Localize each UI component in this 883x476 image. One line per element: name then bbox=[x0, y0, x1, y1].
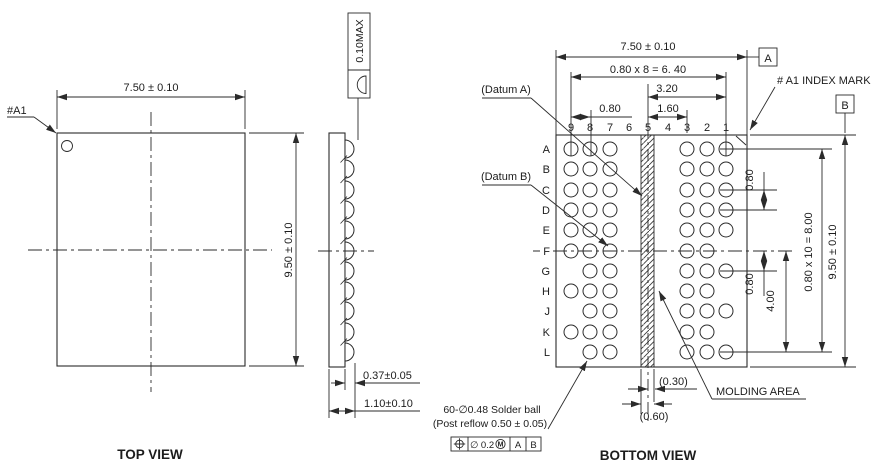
ball-K8 bbox=[583, 325, 597, 339]
ball-H8 bbox=[583, 284, 597, 298]
ball-E1 bbox=[719, 223, 733, 237]
bottom-view: 987654321 ABCDEFGHJKL 7.50 ± 0.10 A 0.80… bbox=[433, 41, 871, 463]
row-label-F: F bbox=[543, 246, 550, 258]
ball-E8 bbox=[583, 223, 597, 237]
ball-L8 bbox=[583, 345, 597, 359]
package-side-outline bbox=[329, 133, 345, 367]
ball-D8 bbox=[583, 203, 597, 217]
ball-G8 bbox=[583, 264, 597, 278]
pitch-h-text: 0.80 bbox=[599, 103, 620, 115]
side-ball-J bbox=[345, 302, 354, 320]
ball-K3 bbox=[680, 325, 694, 339]
molding-full-dim-text: (0.60) bbox=[640, 411, 669, 423]
solder-ball-note-2: (Post reflow 0.50 ± 0.05) bbox=[433, 418, 547, 430]
ball-D9 bbox=[564, 203, 578, 217]
row-label-G: G bbox=[541, 266, 550, 278]
column-label-8: 8 bbox=[587, 122, 593, 134]
ball-H2 bbox=[700, 284, 714, 298]
double-pitch-text: 1.60 bbox=[657, 103, 678, 115]
mmc-modifier-icon: M bbox=[496, 439, 505, 448]
coplanarity-callout: 0.10MAX bbox=[348, 13, 370, 140]
row-label-A: A bbox=[543, 144, 551, 156]
half-span-dimension: 3.20 bbox=[648, 83, 726, 97]
fcf-datum-a: A bbox=[515, 440, 522, 451]
position-tolerance-frame: ∅ 0.2 M A B bbox=[451, 437, 541, 451]
column-label-2: 2 bbox=[704, 122, 710, 134]
ball-B9 bbox=[564, 162, 578, 176]
top-view-title: TOP VIEW bbox=[117, 447, 183, 462]
ball-B3 bbox=[680, 162, 694, 176]
half-span-text: 3.20 bbox=[656, 83, 677, 95]
molding-half-dim-text: (0.30) bbox=[659, 376, 688, 388]
thickness-dim-text: 1.10±0.10 bbox=[364, 398, 413, 410]
molding-strip-dimensions: (0.30) (0.60) bbox=[622, 369, 697, 423]
double-pitch-dimension: 1.60 bbox=[648, 103, 687, 117]
ball-C8 bbox=[583, 183, 597, 197]
coplanarity-value: 0.10MAX bbox=[354, 19, 366, 62]
ball-A7 bbox=[603, 142, 617, 156]
ball-K2 bbox=[700, 325, 714, 339]
row-label-B: B bbox=[543, 164, 550, 176]
ball-B1 bbox=[719, 162, 733, 176]
side-ball-A bbox=[345, 140, 354, 158]
datum-b-flag: B bbox=[841, 100, 848, 112]
mmc-letter: M bbox=[498, 442, 504, 449]
ball-K7 bbox=[603, 325, 617, 339]
fcf-datum-b: B bbox=[530, 440, 536, 451]
pitch-v-upper-text: 0.80 bbox=[744, 169, 756, 190]
side-ball-G bbox=[345, 262, 354, 280]
datum-a-flag: A bbox=[764, 53, 772, 65]
row-label-L: L bbox=[544, 347, 550, 359]
bottom-height-dimension: 9.50 ± 0.10 B bbox=[827, 95, 854, 367]
ball-G7 bbox=[603, 264, 617, 278]
bottom-width-dim-text: 7.50 ± 0.10 bbox=[621, 41, 676, 53]
ball-B7 bbox=[603, 162, 617, 176]
bottom-view-title: BOTTOM VIEW bbox=[600, 448, 697, 463]
ball-E2 bbox=[700, 223, 714, 237]
quad-span-dimension: 4.00 bbox=[765, 251, 786, 352]
position-icon bbox=[454, 438, 465, 449]
side-view: 0.10MAX 0.37±0.05 1.10±0.10 bbox=[318, 13, 420, 418]
bottom-width-dimension: 7.50 ± 0.10 A bbox=[556, 41, 777, 66]
ball-L2 bbox=[700, 345, 714, 359]
row-labels: ABCDEFGHJKL bbox=[541, 144, 550, 359]
ball-B8 bbox=[583, 162, 597, 176]
standoff-dim-text: 0.37±0.05 bbox=[363, 370, 412, 382]
ball-G3 bbox=[680, 264, 694, 278]
side-ball-K bbox=[345, 323, 354, 341]
profile-of-surface-icon bbox=[357, 76, 366, 94]
ball-span-h-dimension: 0.80 x 8 = 6. 40 bbox=[571, 64, 726, 77]
position-tolerance-value: ∅ 0.2 bbox=[470, 440, 494, 451]
side-ball-C bbox=[345, 181, 354, 199]
pitch-h-dimension: 0.80 bbox=[571, 103, 632, 117]
row-label-J: J bbox=[545, 306, 551, 318]
a1-label: #A1 bbox=[7, 105, 27, 117]
pitch-v-lower-text: 0.80 bbox=[744, 273, 756, 294]
bottom-height-dim-text: 9.50 ± 0.10 bbox=[827, 225, 839, 280]
ball-D2 bbox=[700, 203, 714, 217]
side-ball-H bbox=[345, 282, 354, 300]
ball-D7 bbox=[603, 203, 617, 217]
solder-ball-callout: 60-∅0.48 Solder ball (Post reflow 0.50 ±… bbox=[433, 361, 587, 451]
row-label-H: H bbox=[542, 286, 550, 298]
ball-D3 bbox=[680, 203, 694, 217]
index-mark-text: # A1 INDEX MARK bbox=[777, 75, 871, 87]
a1-callout: #A1 bbox=[7, 105, 56, 133]
ball-C7 bbox=[603, 183, 617, 197]
ball-J1 bbox=[719, 304, 733, 318]
row-label-E: E bbox=[543, 225, 550, 237]
ball-E7 bbox=[603, 223, 617, 237]
ball-H9 bbox=[564, 284, 578, 298]
ball-span-h-text: 0.80 x 8 = 6. 40 bbox=[610, 64, 686, 76]
side-ball-D bbox=[345, 201, 354, 219]
package-outline-drawing: 7.50 ± 0.10 9.50 ± 0.10 #A1 TOP VIEW 0.1… bbox=[0, 0, 883, 476]
solder-ball-note-1: 60-∅0.48 Solder ball bbox=[443, 404, 540, 416]
ball-span-v-dimension: 0.80 x 10 = 8.00 bbox=[803, 149, 822, 352]
ball-G2 bbox=[700, 264, 714, 278]
ball-J2 bbox=[700, 304, 714, 318]
side-ball-E bbox=[345, 221, 354, 239]
column-label-7: 7 bbox=[607, 122, 613, 134]
ball-E3 bbox=[680, 223, 694, 237]
datum-b-note-text: (Datum B) bbox=[481, 171, 531, 183]
ball-span-v-text: 0.80 x 10 = 8.00 bbox=[803, 212, 815, 291]
side-ball-L bbox=[345, 343, 354, 361]
ball-L7 bbox=[603, 345, 617, 359]
side-solder-balls bbox=[341, 140, 355, 361]
column-label-4: 4 bbox=[665, 122, 671, 134]
height-dimension: 9.50 ± 0.10 bbox=[249, 133, 304, 366]
ball-J7 bbox=[603, 304, 617, 318]
a1-index-chamfer bbox=[736, 136, 746, 145]
ball-J8 bbox=[583, 304, 597, 318]
ball-A3 bbox=[680, 142, 694, 156]
column-label-6: 6 bbox=[626, 122, 632, 134]
ball-K9 bbox=[564, 325, 578, 339]
column-labels: 987654321 bbox=[568, 122, 729, 134]
ball-B2 bbox=[700, 162, 714, 176]
top-width-dim-text: 7.50 ± 0.10 bbox=[124, 82, 179, 94]
ball-C2 bbox=[700, 183, 714, 197]
row-label-D: D bbox=[542, 205, 550, 217]
top-view: 7.50 ± 0.10 9.50 ± 0.10 #A1 TOP VIEW bbox=[7, 82, 304, 462]
side-ball-B bbox=[345, 160, 354, 178]
ball-C9 bbox=[564, 183, 578, 197]
molding-area-text: MOLDING AREA bbox=[716, 386, 800, 398]
ball-E9 bbox=[564, 223, 578, 237]
ball-J3 bbox=[680, 304, 694, 318]
top-height-dim-text: 9.50 ± 0.10 bbox=[283, 223, 295, 278]
a1-ball-indicator bbox=[62, 141, 73, 152]
row-label-K: K bbox=[543, 327, 551, 339]
ball-H3 bbox=[680, 284, 694, 298]
ball-C3 bbox=[680, 183, 694, 197]
datum-a-note-text: (Datum A) bbox=[481, 84, 531, 96]
index-mark-callout: # A1 INDEX MARK bbox=[750, 75, 871, 130]
ball-H7 bbox=[603, 284, 617, 298]
quad-span-text: 4.00 bbox=[765, 290, 777, 311]
ball-A2 bbox=[700, 142, 714, 156]
